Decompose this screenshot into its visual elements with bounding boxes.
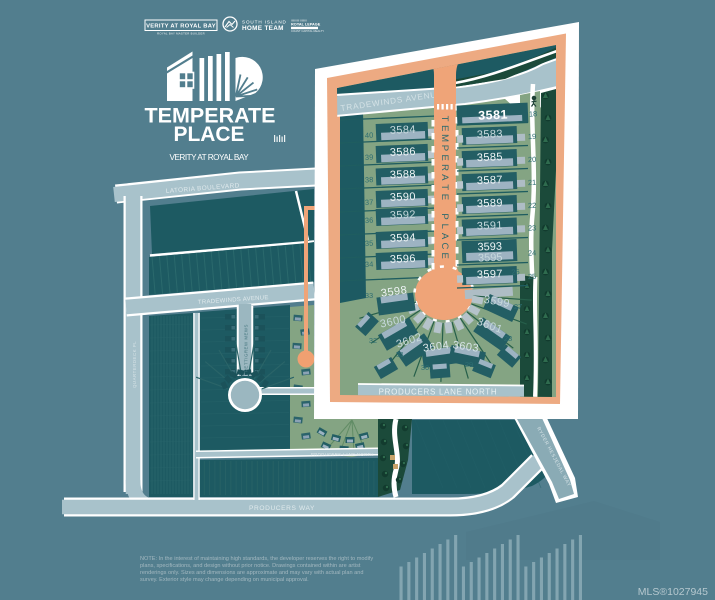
svg-text:24: 24 <box>528 248 537 257</box>
svg-text:3592: 3592 <box>390 209 417 222</box>
svg-text:QUARTERDECK PL: QUARTERDECK PL <box>132 341 137 388</box>
svg-text:PRODUCERS LANE NORTH: PRODUCERS LANE NORTH <box>379 388 498 397</box>
svg-text:3591: 3591 <box>477 220 504 233</box>
svg-text:NOTE: In the interest of maint: NOTE: In the interest of maintaining hig… <box>140 556 373 562</box>
svg-text:3594: 3594 <box>390 232 417 245</box>
svg-text:VERITY AT ROYAL BAY: VERITY AT ROYAL BAY <box>146 24 216 30</box>
svg-text:21: 21 <box>528 178 537 187</box>
svg-text:P: P <box>439 145 450 151</box>
svg-text:COAST CAPITAL REALTY: COAST CAPITAL REALTY <box>291 29 324 33</box>
svg-text:39: 39 <box>365 153 374 162</box>
svg-text:3583: 3583 <box>477 128 504 141</box>
svg-text:3588: 3588 <box>390 168 417 181</box>
svg-text:25: 25 <box>528 272 537 281</box>
svg-text:C: C <box>439 242 450 249</box>
svg-text:T: T <box>439 184 450 190</box>
svg-text:28: 28 <box>504 334 512 343</box>
svg-text:3581: 3581 <box>478 107 508 122</box>
svg-text:30: 30 <box>421 363 429 372</box>
svg-text:27: 27 <box>514 302 522 311</box>
svg-text:36: 36 <box>365 216 374 225</box>
svg-text:3587: 3587 <box>477 174 504 187</box>
svg-text:19: 19 <box>528 132 537 141</box>
svg-text:A: A <box>439 233 450 240</box>
svg-text:37: 37 <box>365 198 374 207</box>
svg-text:3590: 3590 <box>390 191 417 204</box>
svg-text:29: 29 <box>465 360 473 369</box>
svg-text:E: E <box>439 194 450 200</box>
svg-text:E: E <box>439 125 450 131</box>
svg-text:3585: 3585 <box>477 151 504 164</box>
svg-text:3595: 3595 <box>478 252 503 265</box>
svg-text:P: P <box>439 213 450 219</box>
svg-text:A: A <box>439 174 450 181</box>
svg-text:3586: 3586 <box>390 146 417 159</box>
svg-text:VERITY AT ROYAL BAY: VERITY AT ROYAL BAY <box>170 153 251 162</box>
svg-text:SOUTH ISLAND: SOUTH ISLAND <box>242 20 287 25</box>
svg-text:renderings only. Sizes and dim: renderings only. Sizes and dimensions ar… <box>140 570 363 576</box>
svg-text:31: 31 <box>396 350 404 359</box>
svg-text:3584: 3584 <box>390 124 417 137</box>
svg-text:survey. Exterior style may cha: survey. Exterior style may change depend… <box>140 577 309 583</box>
svg-text:R: R <box>439 164 450 171</box>
svg-text:3597: 3597 <box>477 268 504 281</box>
svg-text:M: M <box>439 134 450 142</box>
svg-text:plans, specifications, and des: plans, specifications, and design withou… <box>140 563 361 569</box>
svg-text:40: 40 <box>365 131 374 140</box>
svg-text:PRODUCERS LANE NORTH: PRODUCERS LANE NORTH <box>311 452 374 457</box>
svg-text:32: 32 <box>369 336 377 345</box>
svg-text:18: 18 <box>529 109 538 118</box>
svg-text:35: 35 <box>365 239 374 248</box>
svg-text:3596: 3596 <box>390 253 417 266</box>
svg-text:3589: 3589 <box>477 197 504 210</box>
svg-text:ROYAL BAY MASTER BUILDER: ROYAL BAY MASTER BUILDER <box>157 32 205 36</box>
svg-text:PLACE: PLACE <box>174 123 245 146</box>
svg-text:HOME TEAM: HOME TEAM <box>242 25 284 32</box>
svg-text:38: 38 <box>365 175 374 184</box>
svg-text:T: T <box>439 116 450 122</box>
svg-text:PETTIGREW MEWS: PETTIGREW MEWS <box>243 324 248 372</box>
svg-text:E: E <box>439 253 450 259</box>
svg-text:34: 34 <box>365 260 374 269</box>
svg-text:20: 20 <box>528 155 537 164</box>
svg-text:E: E <box>439 155 450 161</box>
svg-text:PRODUCERS WAY: PRODUCERS WAY <box>249 505 315 512</box>
svg-text:33: 33 <box>365 291 373 300</box>
svg-text:26: 26 <box>511 267 520 277</box>
svg-text:22: 22 <box>528 201 537 210</box>
svg-text:L: L <box>439 224 450 229</box>
svg-text:23: 23 <box>528 223 537 232</box>
svg-text:ROYAL LEPAGE: ROYAL LEPAGE <box>291 23 321 27</box>
svg-text:MLS®1027945: MLS®1027945 <box>638 586 708 598</box>
